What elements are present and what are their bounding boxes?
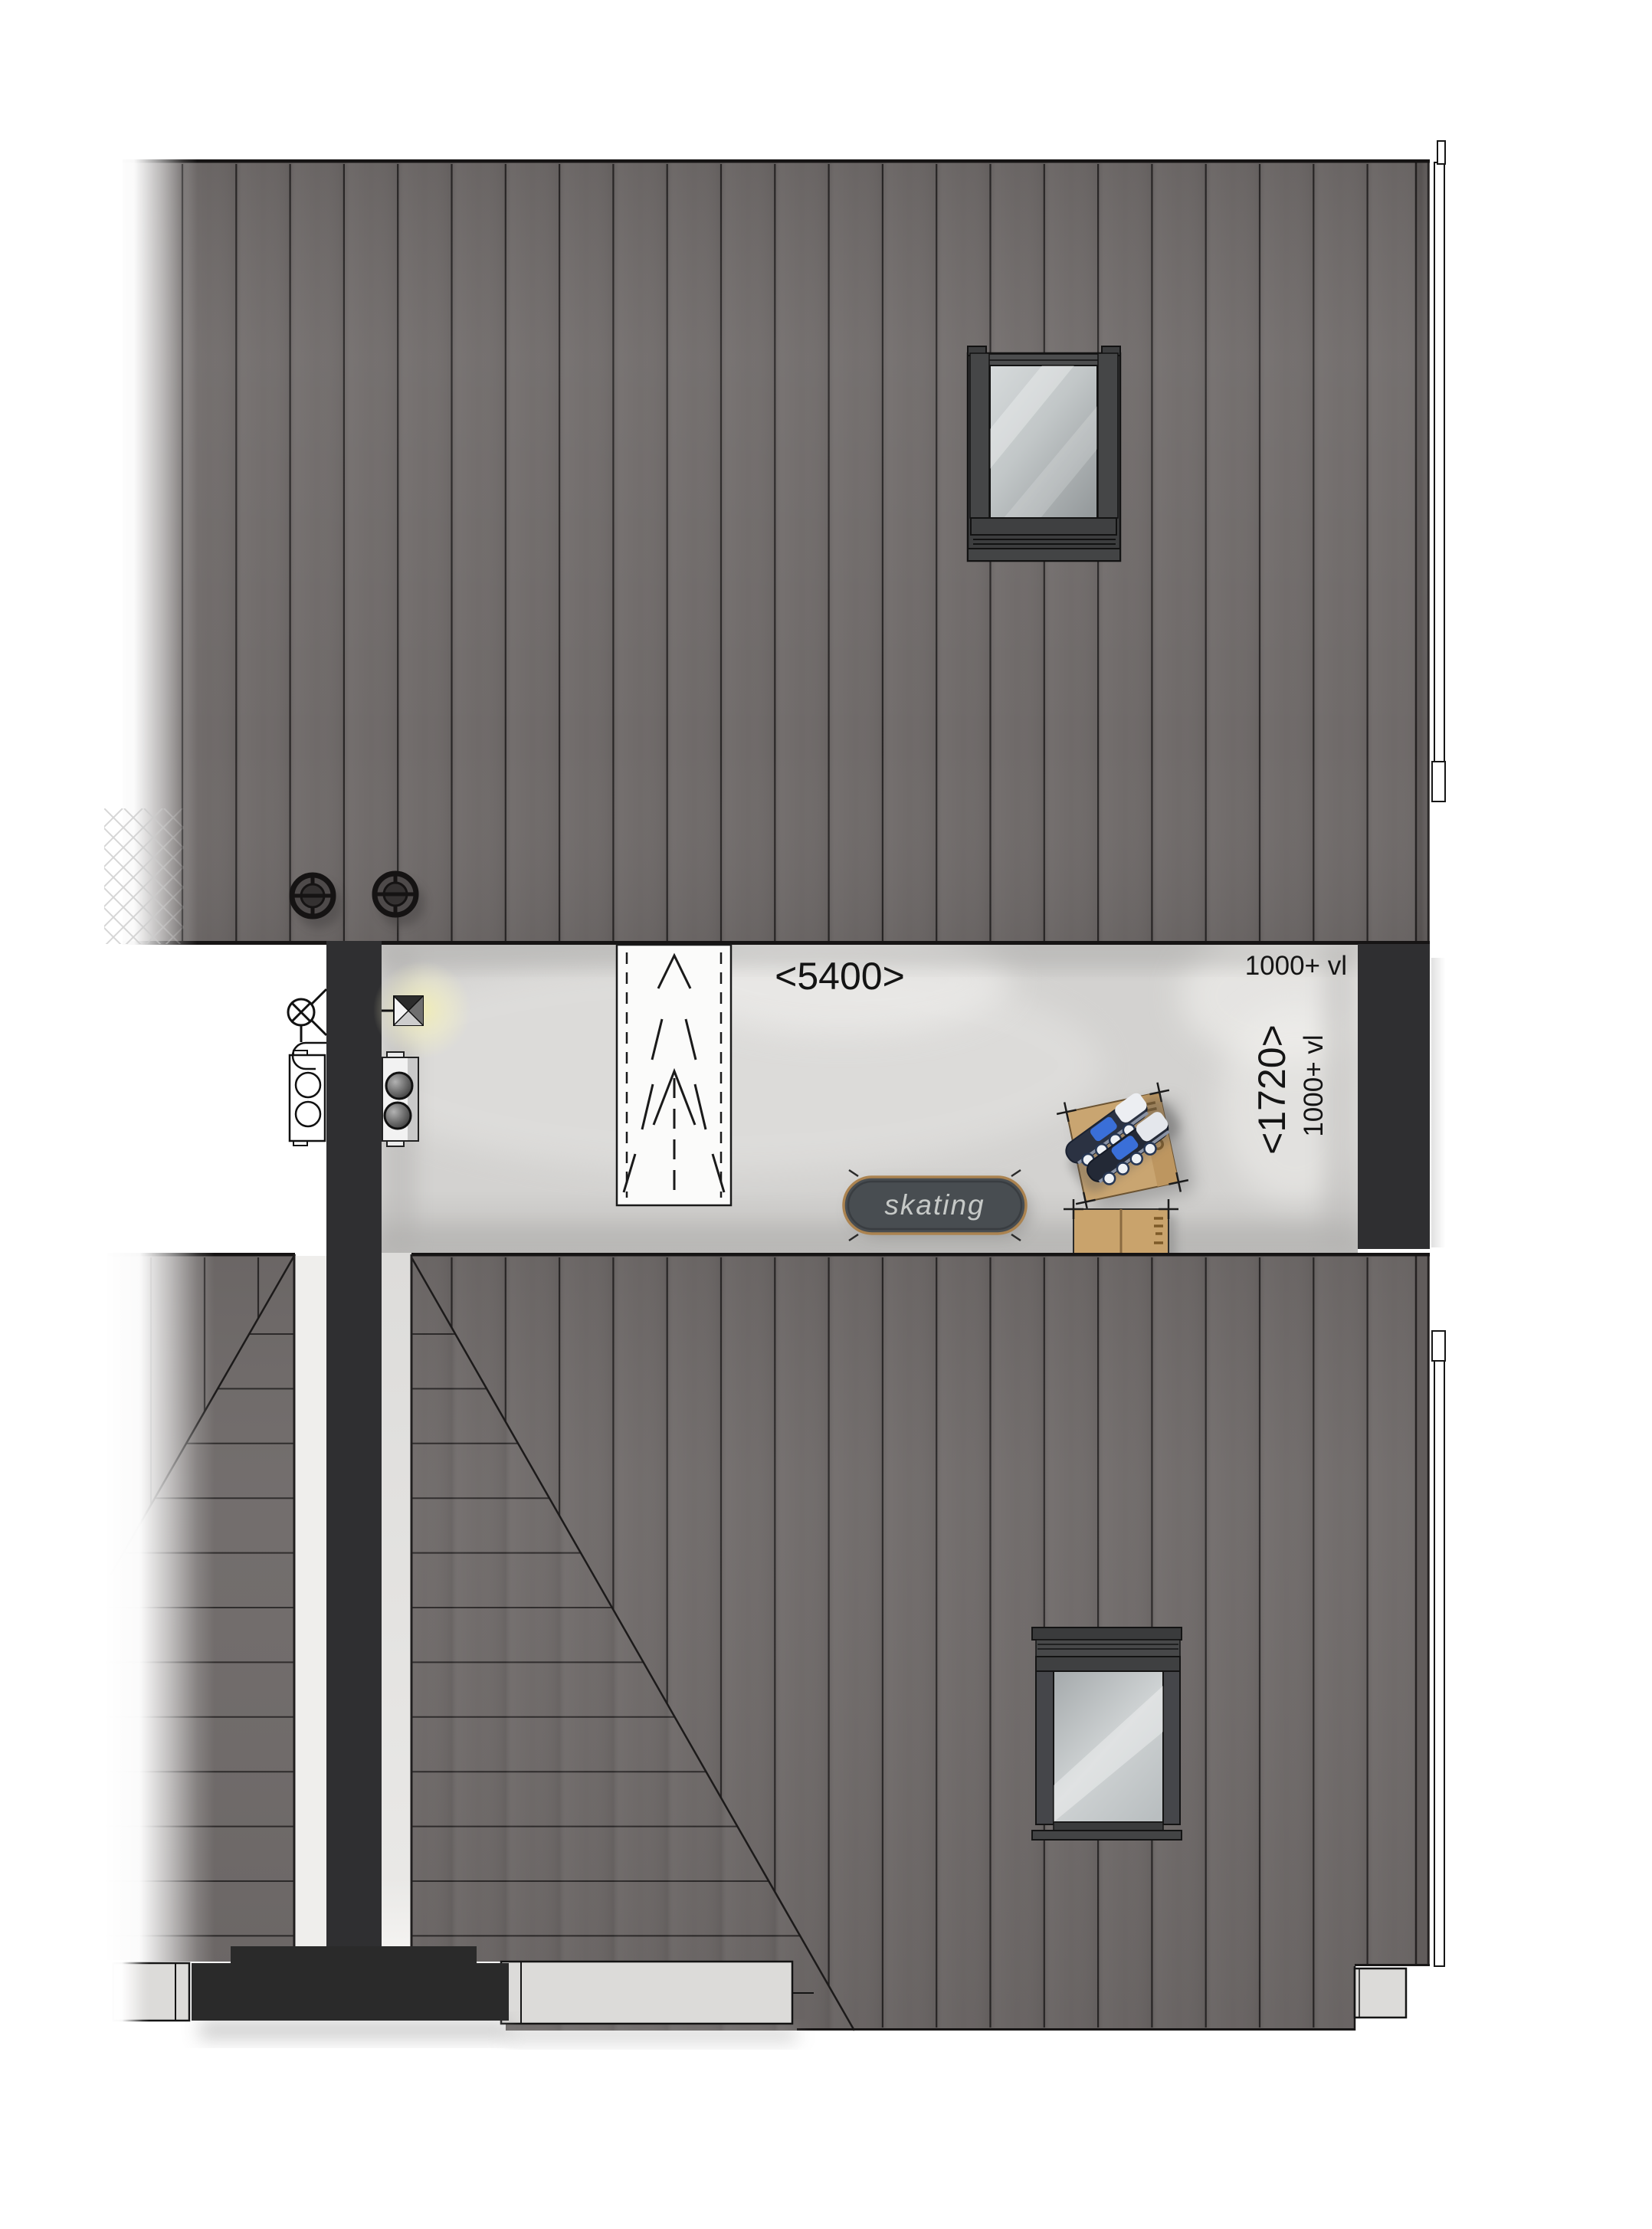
- svg-text:1000+ vl: 1000+ vl: [1299, 1034, 1329, 1136]
- svg-text:<5400>: <5400>: [775, 955, 905, 998]
- svg-text:skating: skating: [884, 1189, 985, 1221]
- svg-text:<1720>: <1720>: [1250, 1024, 1293, 1155]
- svg-text:1000+ vl: 1000+ vl: [1245, 951, 1347, 981]
